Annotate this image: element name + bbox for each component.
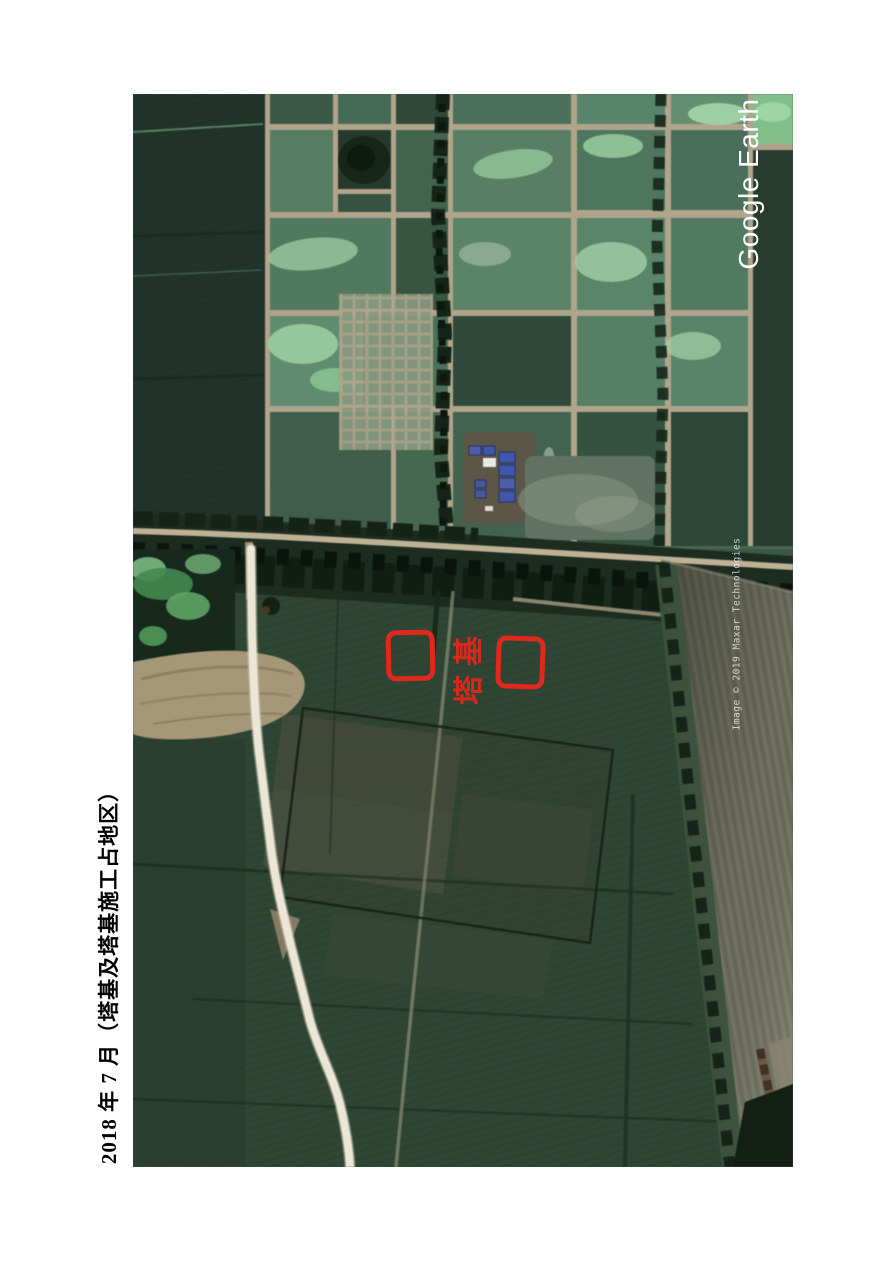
tower-base-label: 塔基: [444, 627, 488, 705]
google-earth-logo: Google Earth: [733, 99, 765, 270]
figure-caption: 2018 年 7 月（塔基及塔基施工占地区）: [93, 780, 123, 1164]
document-page: 2018 年 7 月（塔基及塔基施工占地区）: [0, 0, 892, 1263]
imagery-watermark: Image © 2019 Maxar Technologies: [732, 538, 743, 731]
tower-base-box-right: [495, 635, 546, 690]
satellite-image: 塔基 Google Earth Image © 2019 Maxar Techn…: [133, 94, 793, 1167]
tower-base-box-left: [386, 630, 436, 682]
